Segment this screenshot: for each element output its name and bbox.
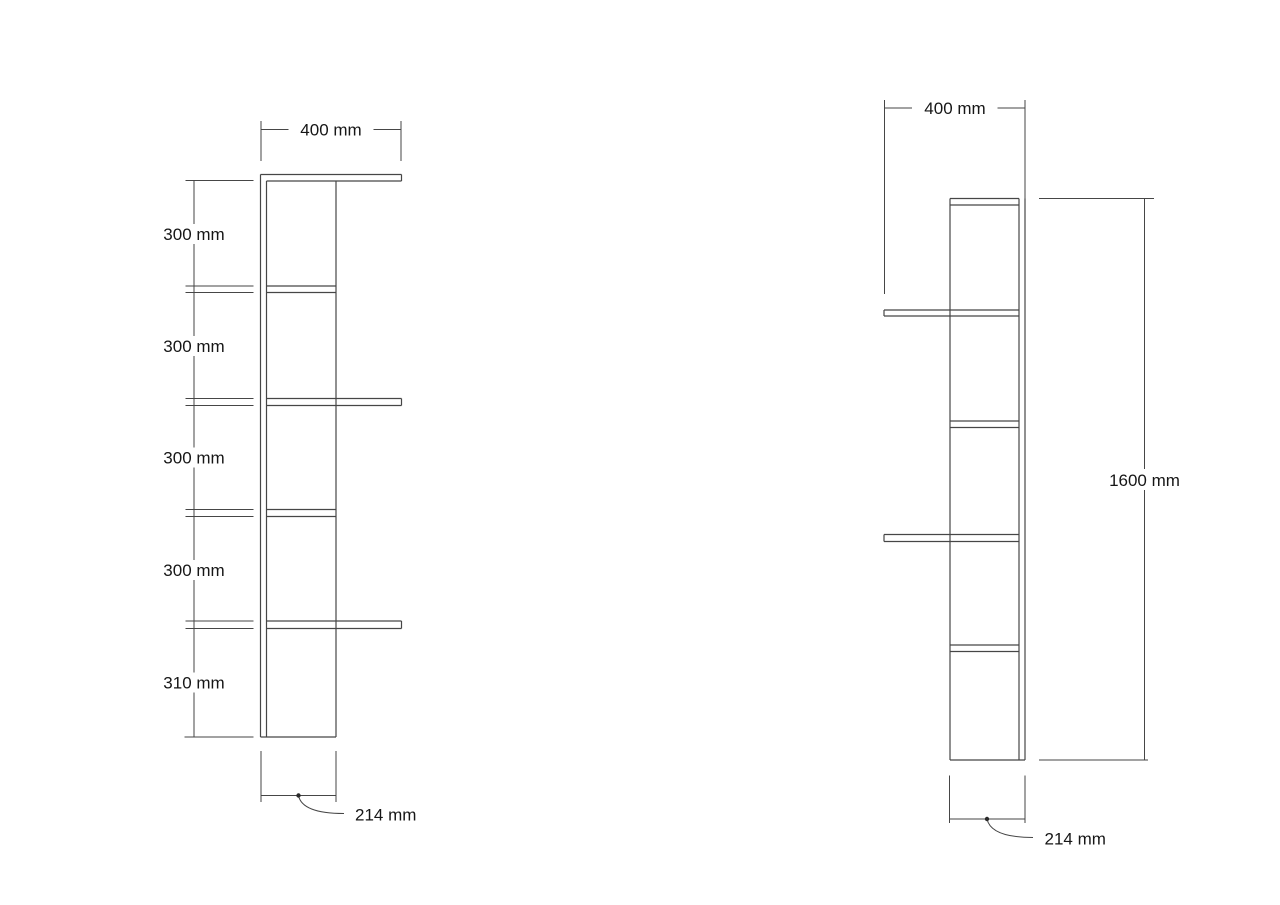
svg-text:214 mm: 214 mm <box>355 806 416 825</box>
svg-text:300 mm: 300 mm <box>163 225 224 244</box>
svg-text:1600 mm: 1600 mm <box>1109 471 1180 490</box>
svg-text:400 mm: 400 mm <box>300 121 361 140</box>
svg-text:400 mm: 400 mm <box>924 99 985 118</box>
svg-text:300 mm: 300 mm <box>163 337 224 356</box>
svg-text:310 mm: 310 mm <box>163 674 224 693</box>
svg-text:214 mm: 214 mm <box>1045 830 1106 849</box>
svg-text:300 mm: 300 mm <box>163 561 224 580</box>
svg-text:300 mm: 300 mm <box>163 449 224 468</box>
